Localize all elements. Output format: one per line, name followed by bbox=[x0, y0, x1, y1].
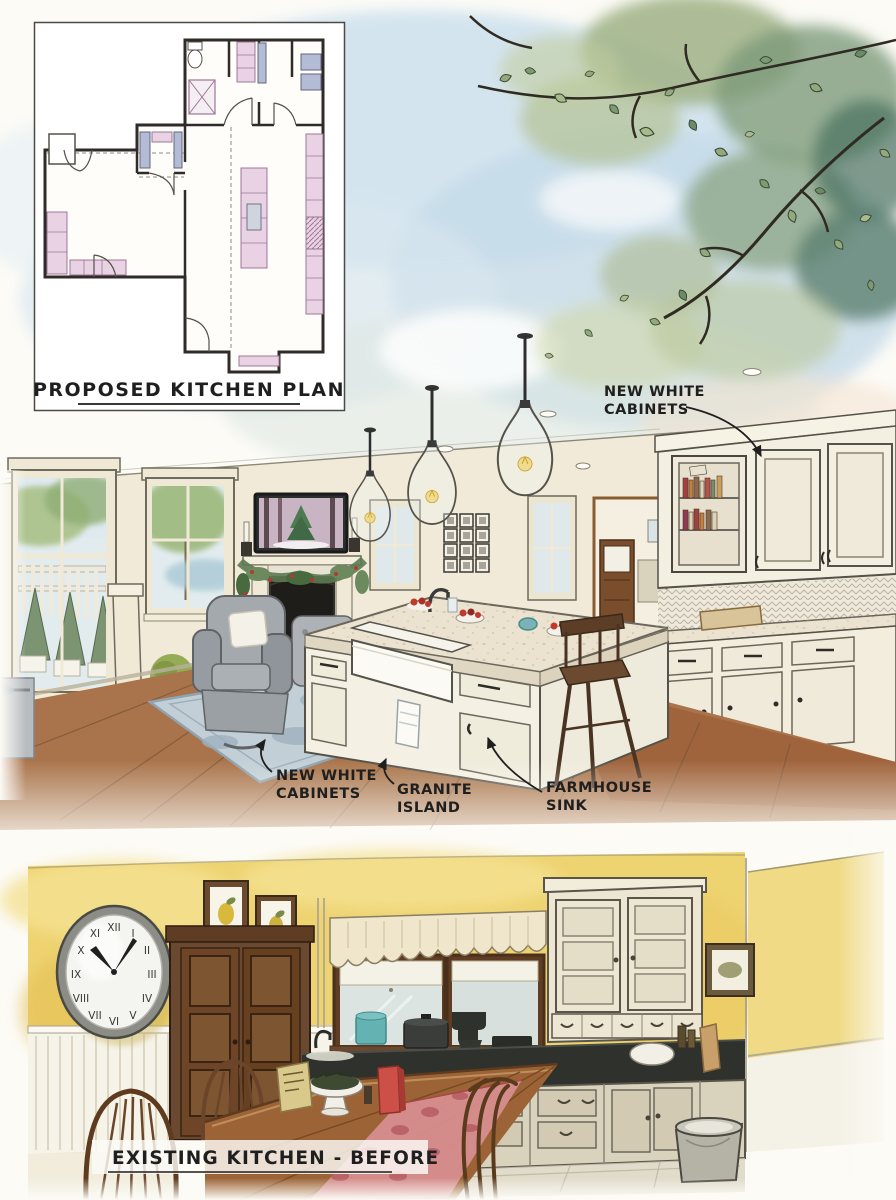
small-picture bbox=[706, 944, 754, 996]
armchair bbox=[193, 596, 292, 748]
white-bowl bbox=[630, 1043, 674, 1065]
doorway bbox=[594, 498, 666, 630]
page-bottom-fade bbox=[0, 1178, 896, 1200]
annotation-sink-line1: FARMHOUSE bbox=[546, 780, 652, 796]
svg-text:II: II bbox=[144, 945, 150, 957]
svg-text:VIII: VIII bbox=[73, 993, 89, 1005]
annotation-island-line1: GRANITE bbox=[397, 782, 472, 798]
upper-cabinets bbox=[655, 410, 896, 588]
watercolor-kitchen-illustration: PROPOSED KITCHEN PLAN bbox=[0, 0, 896, 1200]
scene-left-fade bbox=[0, 470, 26, 800]
annotation-lower-cabinets-line1: NEW WHITE bbox=[276, 768, 377, 784]
before-label: EXISTING KITCHEN - BEFORE bbox=[112, 1148, 439, 1169]
counter-sink bbox=[306, 1051, 354, 1061]
before-upper-cabinets bbox=[544, 878, 706, 1042]
annotation-upper-cabinets-line1: NEW WHITE bbox=[604, 384, 705, 400]
svg-text:III: III bbox=[147, 969, 156, 981]
svg-text:IX: IX bbox=[71, 969, 81, 981]
right-window bbox=[528, 496, 576, 600]
before-label-group: EXISTING KITCHEN - BEFORE bbox=[92, 1140, 439, 1174]
plan-title: PROPOSED KITCHEN PLAN bbox=[33, 379, 345, 401]
annotation-upper-cabinets-line2: CABINETS bbox=[604, 402, 689, 418]
existing-kitchen-scene: XII I II III IV V VI VII VIII IX X XI bbox=[0, 830, 896, 1200]
svg-text:XI: XI bbox=[90, 928, 100, 940]
annotation-lower-cabinets-line2: CABINETS bbox=[276, 786, 361, 802]
svg-text:V: V bbox=[129, 1010, 137, 1022]
throw-pillow bbox=[228, 610, 267, 648]
trash-can bbox=[676, 1118, 742, 1182]
floor-plan-panel: PROPOSED KITCHEN PLAN bbox=[33, 23, 345, 411]
svg-text:XII: XII bbox=[107, 922, 120, 934]
bottle bbox=[364, 1086, 372, 1104]
cookbook bbox=[277, 1062, 312, 1112]
before-right-fade bbox=[838, 830, 896, 1200]
svg-text:VI: VI bbox=[109, 1016, 119, 1028]
illustration-svg: PROPOSED KITCHEN PLAN bbox=[0, 0, 896, 1200]
svg-text:VII: VII bbox=[88, 1010, 101, 1022]
red-box bbox=[378, 1066, 406, 1114]
svg-text:IV: IV bbox=[142, 993, 153, 1005]
annotation-island-line2: ISLAND bbox=[397, 800, 460, 816]
annotation-sink-line2: SINK bbox=[546, 798, 587, 814]
svg-text:X: X bbox=[77, 945, 84, 957]
tv bbox=[255, 494, 347, 552]
